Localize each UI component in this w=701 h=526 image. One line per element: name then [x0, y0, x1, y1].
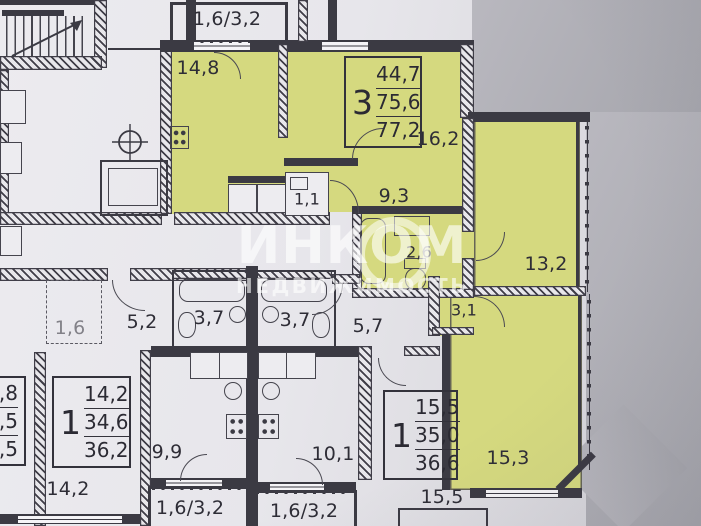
bedroom-right-west-wall-2: [462, 258, 474, 290]
staircase-direction-arrow: [2, 12, 94, 64]
kitchen-counter: [190, 352, 220, 379]
wall-edge-apartment: [34, 352, 46, 526]
stamp-total-area: 36,2: [84, 437, 129, 464]
toilet-bowl: [405, 268, 426, 290]
stamp-usable-area: 35,0: [415, 422, 460, 450]
kitchen-left-balcony-door: [180, 454, 207, 481]
stove-icon: [170, 126, 189, 149]
hall-main-label: 9,3: [379, 185, 410, 207]
elevator-axis-crosshair-icon: [110, 122, 150, 162]
bath-sink: [262, 306, 279, 323]
kitchen-sink: [262, 382, 280, 400]
stamp-total-area: 36,6: [415, 450, 460, 477]
bathtub: [179, 279, 245, 302]
stamp-usable-area: ,5: [0, 408, 18, 436]
storage-left-label: 1,6: [55, 317, 86, 339]
wall-kitchen-apt15: [358, 346, 372, 480]
kitchen-living-wall: [278, 44, 288, 138]
stamp-total-area: ,5: [0, 436, 18, 463]
bedroom-right-label: 13,2: [524, 253, 567, 275]
bathtub: [360, 218, 386, 284]
kitchen-window: [194, 42, 250, 50]
stamp-1room-right: 1 15,5 35,0 36,6: [383, 390, 458, 480]
kitchen-counter: [286, 352, 316, 379]
closet-wall: [228, 176, 286, 183]
stamp-room-count: 3: [352, 86, 373, 119]
elevator-car: [108, 168, 158, 206]
balcony-apt15-outline: [398, 508, 488, 526]
bedroom-right-west-wall: [462, 118, 474, 232]
wc-main-label: 1,1: [294, 190, 320, 209]
kitchen-main-label: 14,8: [176, 57, 219, 79]
room-bottom-left-label: 14,2: [46, 478, 89, 500]
hall-left-label: 5,2: [127, 311, 158, 333]
bath-sink: [229, 306, 246, 323]
bedroom-lower-label: 15,3: [486, 447, 529, 469]
floor-plan-photo: 1,6/3,2 14,8 16,2 9,3 1,1 2,6 13,2 3,1 1…: [0, 0, 701, 526]
step-corner-wall: [460, 44, 474, 118]
bedroom-lower-window: [486, 490, 558, 497]
bath-main-label: 2,6: [406, 243, 432, 262]
stamp-room-count: 1: [391, 419, 412, 452]
room-bottom-right-label: 15,5: [420, 486, 463, 508]
stair-top-wall: [0, 0, 96, 5]
living-main-label: 16,2: [416, 128, 459, 150]
stamp-3room-apartment: 3 44,7 75,6 77,2: [344, 56, 422, 148]
apt15-door-arc: [378, 358, 406, 386]
stamp-living-area: 44,7: [376, 61, 421, 89]
left-room-window: [18, 516, 122, 523]
toilet-bowl: [312, 312, 330, 338]
bath-main-north-wall: [352, 206, 474, 214]
apt15-north-wall: [404, 346, 440, 356]
utility-cabinet: [0, 142, 22, 174]
hall-inner-label: 3,1: [451, 301, 477, 320]
hall-mid-door-arc: [312, 284, 343, 315]
hall-left-door-arc: [112, 280, 145, 311]
kitchen-left-label: 9,9: [152, 441, 183, 463]
balcony-bottom-left-sill: [152, 487, 241, 490]
stove-icon: [258, 414, 279, 439]
stamp-usable-area: 34,6: [84, 409, 129, 437]
kitchen-sink: [224, 382, 242, 400]
stamp-total-area: 77,2: [376, 117, 421, 144]
hall-inner-south-wall: [432, 327, 474, 335]
hall-closet: [257, 184, 287, 213]
balcony-top-label: 1,6/3,2: [193, 8, 261, 30]
kitchen-mid-label: 10,1: [311, 443, 354, 465]
utility-cabinet: [0, 226, 22, 256]
living-south-wall: [284, 158, 358, 166]
east-wall-ticks-upper: [585, 126, 589, 284]
kitchen-counter: [258, 352, 287, 379]
balcony-bottom-mid-label: 1,6/3,2: [270, 500, 338, 522]
north-east-wall: [468, 112, 590, 122]
hall-closet: [228, 184, 257, 213]
living-window: [322, 42, 368, 50]
stamp-1room-left: 1 14,2 34,6 36,2: [52, 376, 131, 468]
outside-area-top-right: [472, 0, 701, 116]
hall-mid-north-wall: [332, 274, 360, 284]
balcony-top-sill: [172, 40, 280, 43]
neighbor-top-wall: [298, 0, 308, 42]
stamp-living-area: 14,2: [84, 381, 129, 409]
bedroom-right-south-wall: [474, 286, 586, 296]
utility-cabinet: [0, 90, 26, 124]
stamp-living-area: ,8: [0, 380, 18, 408]
kitchen-counter: [219, 352, 248, 379]
wc-sink: [290, 177, 308, 190]
stamp-usable-area: 75,6: [376, 89, 421, 117]
east-wall-ticks-lower: [587, 300, 591, 460]
hall-mid-label: 5,7: [353, 315, 384, 337]
balcony-bottom-left-label: 1,6/3,2: [156, 497, 224, 519]
bath-mid-label: 3,7: [280, 309, 311, 331]
balcony-bottom-mid-sill: [256, 491, 347, 494]
stove-icon: [226, 414, 247, 439]
bath-sink: [394, 216, 430, 236]
stamp-edge-partial: ,8 ,5 ,5: [0, 376, 26, 466]
stamp-living-area: 15,5: [415, 394, 460, 422]
neighbor-top-wall-2: [328, 0, 337, 44]
bath-left-label: 3,7: [194, 307, 225, 329]
stamp-room-count: 1: [60, 406, 81, 439]
